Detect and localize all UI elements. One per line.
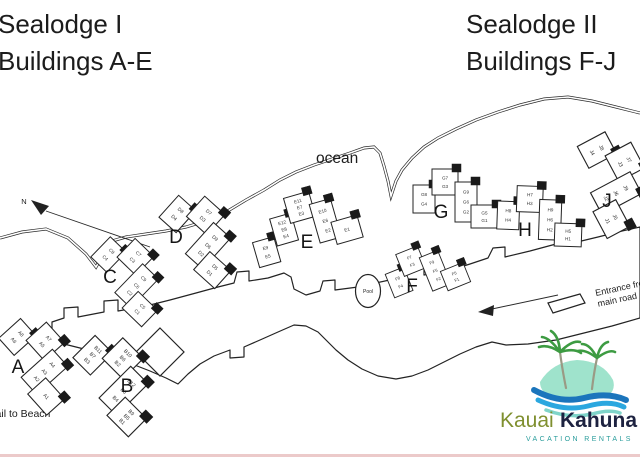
unit-label: H7 — [527, 192, 533, 197]
unit-label: G6 — [463, 200, 470, 205]
stair-block — [471, 177, 480, 185]
site-map-drawing: N ocean Pool Entrance from main road Tra… — [0, 0, 640, 457]
unit-label: H4 — [505, 218, 511, 223]
stair-block — [452, 164, 461, 172]
building-B-letter: B — [121, 376, 134, 397]
building-F-letter: F — [406, 276, 418, 297]
unit-label: G5 — [481, 210, 488, 215]
building-D-letter: D — [169, 227, 183, 248]
unit-label: G9 — [463, 190, 470, 195]
building-J-letter: J — [602, 191, 612, 212]
building-G: G8G4G7G3G9G6G2G5G1 — [413, 164, 501, 228]
unit-label: H9 — [547, 207, 553, 212]
pool-label: Pool — [363, 289, 373, 295]
compass-north-label: N — [21, 197, 26, 206]
stair-block — [350, 209, 361, 219]
building-A-letter: A — [12, 357, 25, 378]
building-G-wing-bottomRight — [471, 205, 498, 228]
sealodge-site-map: Sealodge I Buildings A-E Sealodge II Bui… — [0, 0, 640, 457]
building-C-letter: C — [103, 267, 117, 288]
building-G-wing-top — [432, 169, 458, 195]
kauai-kahuna-logo: Kauai Kahuna VACATION RENTALS — [500, 331, 637, 443]
building-E: E9E5E12E8E4E11E7E3E10E6E2E1 — [242, 175, 367, 268]
compass: N — [21, 197, 150, 247]
unit-label: G3 — [442, 184, 449, 189]
unit-label: H8 — [505, 208, 511, 213]
unit-label: H5 — [565, 229, 571, 234]
unit-label: H6 — [547, 217, 553, 222]
unit-label: G2 — [463, 210, 470, 215]
unit-label: H3 — [527, 201, 533, 206]
logo-brand-first: Kauai — [500, 409, 554, 432]
building-E-letter: E — [301, 232, 314, 253]
unit-label: G4 — [421, 201, 428, 206]
ocean-label: ocean — [316, 150, 358, 167]
stair-block — [576, 219, 585, 227]
building-G-letter: G — [434, 202, 449, 223]
building-H-letter: H — [518, 220, 532, 241]
unit-label: G8 — [421, 192, 428, 197]
unit-label: H2 — [547, 227, 553, 232]
stair-block — [537, 181, 546, 189]
stair-block — [556, 195, 565, 203]
building-H: H8H4H7H3H9H6H2H5H1 — [496, 180, 586, 247]
unit-label: H1 — [565, 236, 571, 241]
unit-label: G1 — [481, 218, 488, 223]
stair-block — [301, 186, 312, 196]
stair-block — [323, 193, 334, 203]
logo-tagline: VACATION RENTALS — [526, 436, 633, 443]
logo-brand-second: Kahuna — [560, 409, 637, 432]
palm-fronds-icon — [578, 342, 615, 358]
compass-arrowhead-icon — [31, 200, 49, 215]
pool: Pool — [356, 275, 381, 308]
unit-label: G7 — [442, 175, 449, 180]
